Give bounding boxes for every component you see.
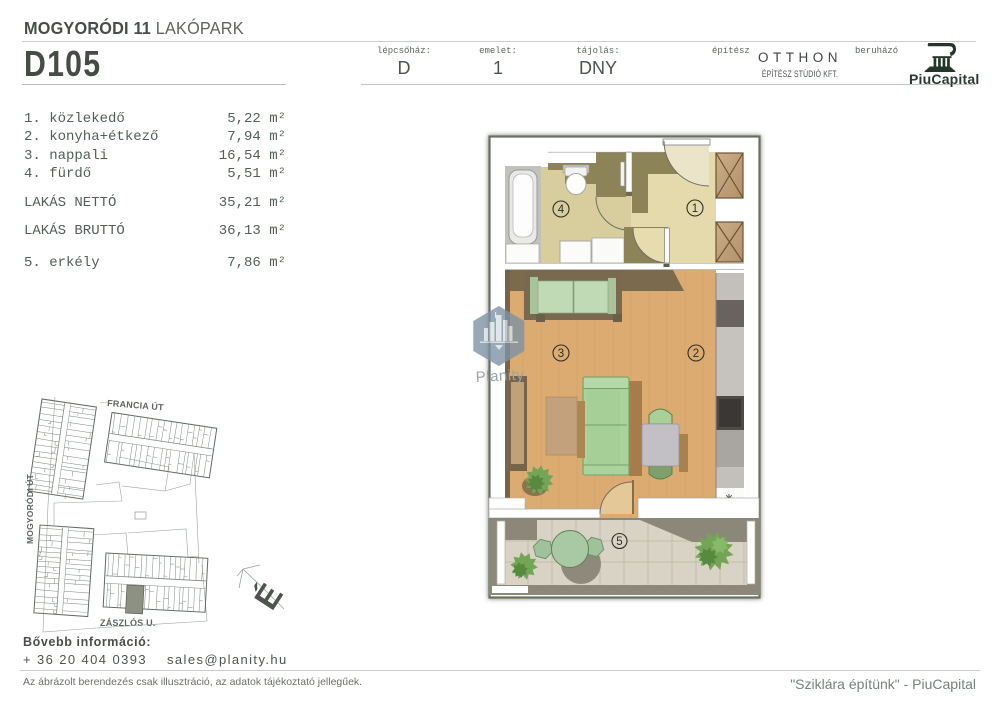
svg-text:2: 2 [693,348,699,360]
svg-text:5: 5 [616,536,622,548]
svg-text:É: É [247,577,290,616]
svg-text:4: 4 [558,204,565,216]
svg-text:Planity: Planity [475,366,524,386]
svg-text:1: 1 [692,203,698,215]
svg-text:ZÁSZLÓS U.: ZÁSZLÓS U. [100,617,156,628]
svg-text:FRANCIA ÚT: FRANCIA ÚT [107,397,165,412]
